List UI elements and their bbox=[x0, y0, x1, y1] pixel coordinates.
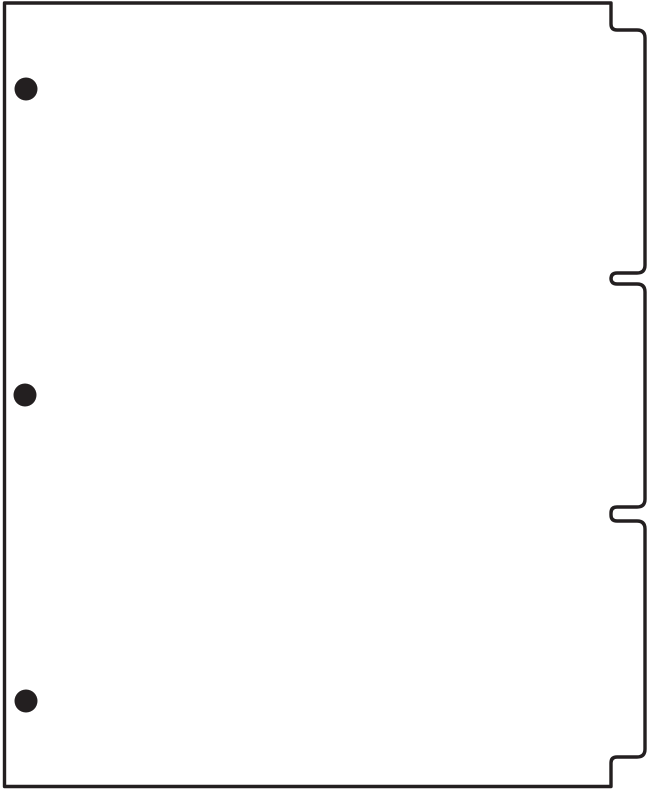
binder-hole-1 bbox=[15, 78, 38, 101]
binder-hole-3 bbox=[15, 690, 38, 713]
binder-hole-2 bbox=[14, 384, 37, 407]
divider-page-illustration bbox=[0, 0, 650, 792]
divider-sheet-outline bbox=[5, 3, 646, 787]
divider-outline-svg bbox=[0, 0, 650, 792]
